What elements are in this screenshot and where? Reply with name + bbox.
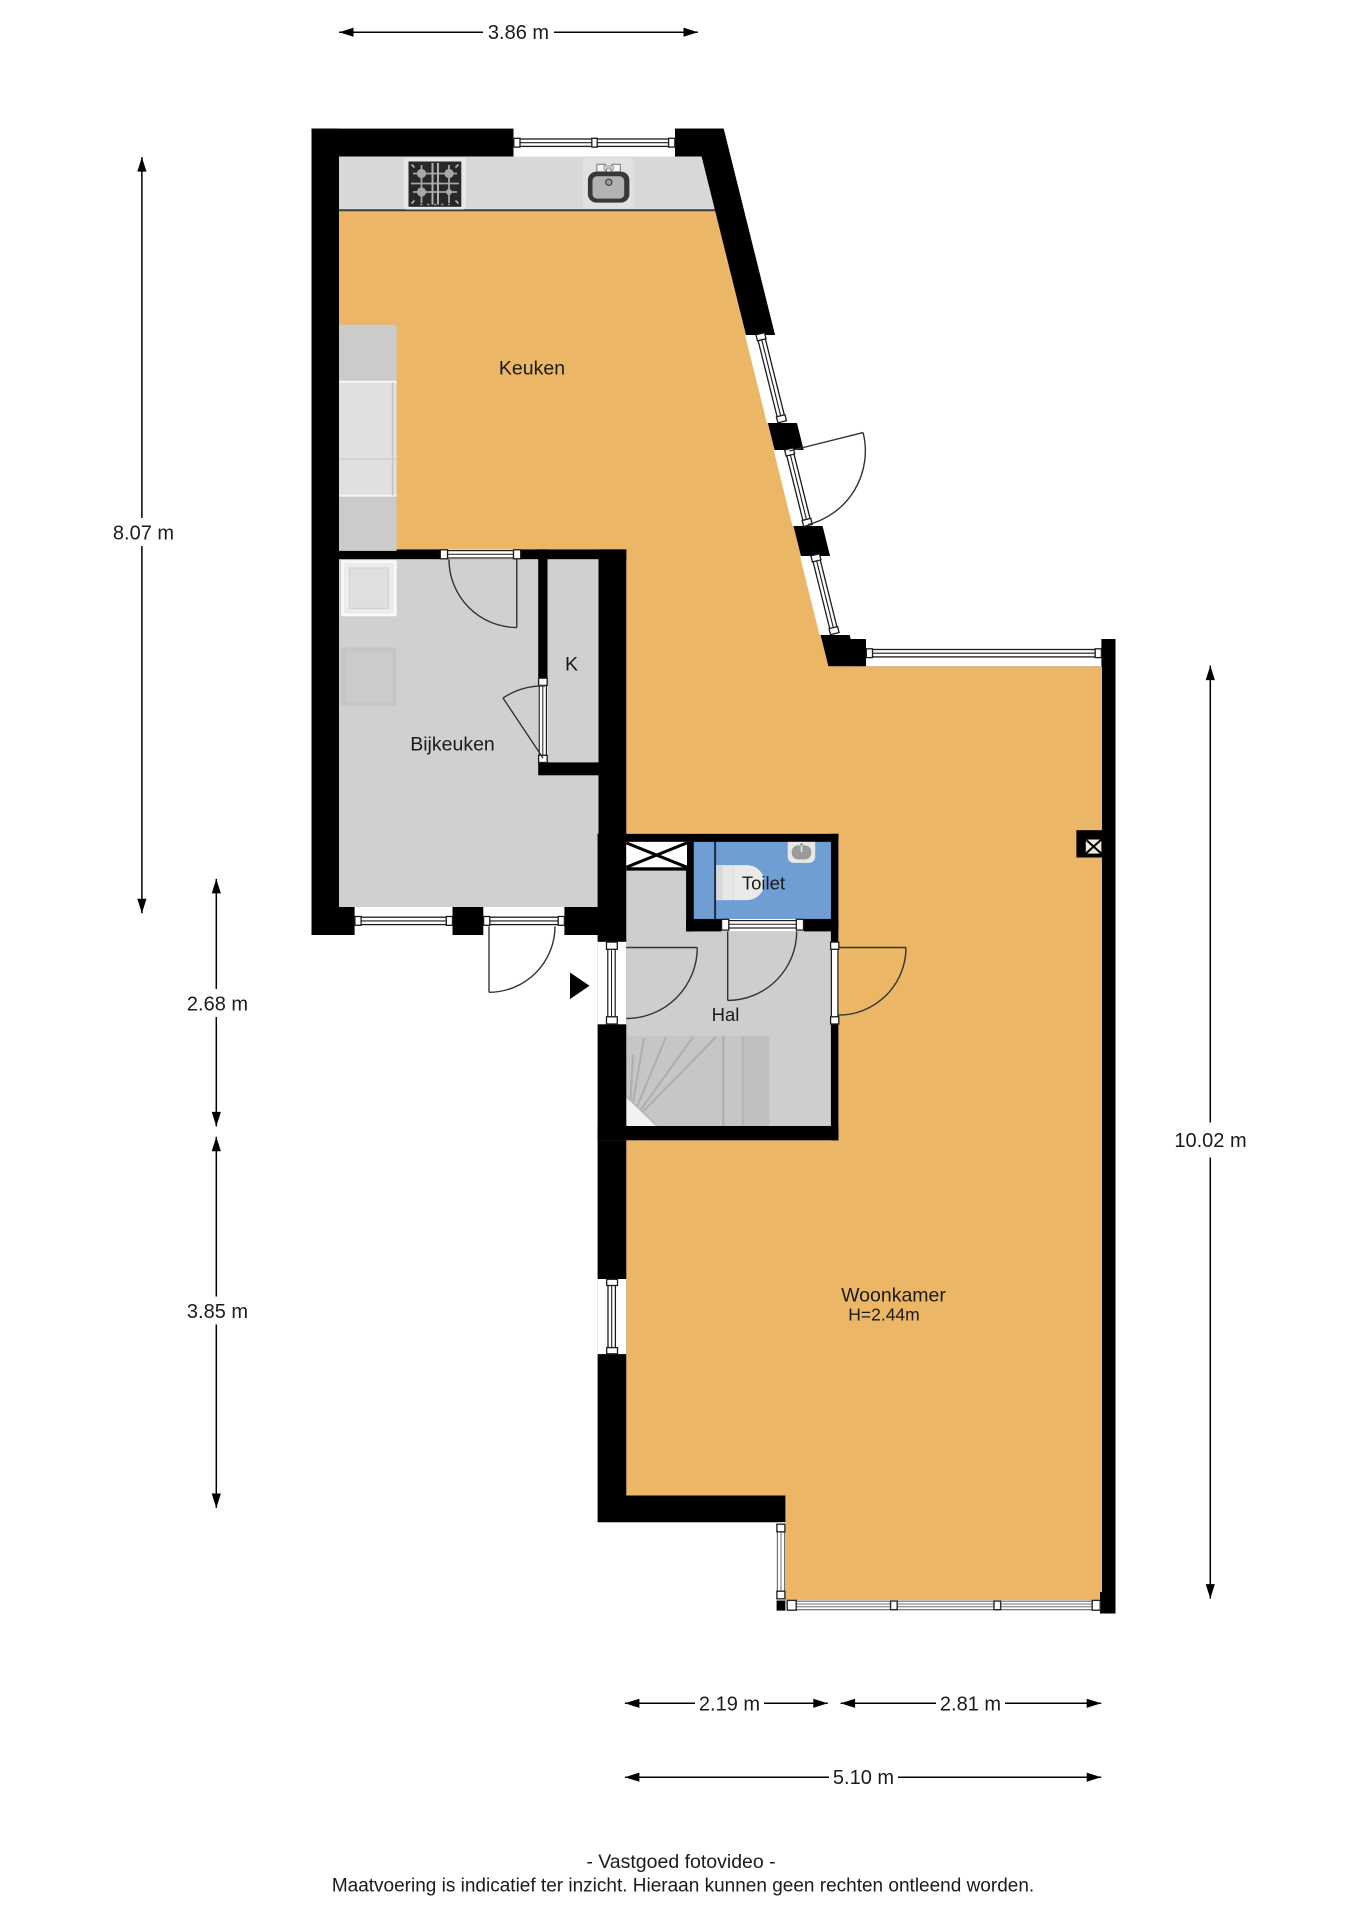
- svg-text:5.10 m: 5.10 m: [833, 1767, 894, 1789]
- svg-text:Hal: Hal: [712, 1004, 740, 1025]
- svg-text:H=2.44m: H=2.44m: [848, 1305, 920, 1325]
- svg-text:10.02 m: 10.02 m: [1174, 1130, 1246, 1152]
- svg-text:K: K: [565, 654, 578, 676]
- svg-text:Keuken: Keuken: [499, 358, 565, 380]
- svg-text:Toilet: Toilet: [742, 873, 785, 894]
- svg-text:Woonkamer: Woonkamer: [841, 1285, 946, 1307]
- svg-text:- Vastgoed fotovideo -: - Vastgoed fotovideo -: [586, 1851, 775, 1873]
- svg-text:3.86 m: 3.86 m: [488, 22, 549, 44]
- svg-text:8.07 m: 8.07 m: [113, 523, 174, 545]
- svg-text:Maatvoering is indicatief ter: Maatvoering is indicatief ter inzicht. H…: [332, 1876, 1034, 1897]
- svg-text:3.85 m: 3.85 m: [187, 1301, 248, 1323]
- svg-text:2.19 m: 2.19 m: [699, 1693, 760, 1715]
- svg-text:2.81 m: 2.81 m: [940, 1693, 1001, 1715]
- svg-text:Bijkeuken: Bijkeuken: [410, 734, 495, 756]
- svg-text:2.68 m: 2.68 m: [187, 994, 248, 1016]
